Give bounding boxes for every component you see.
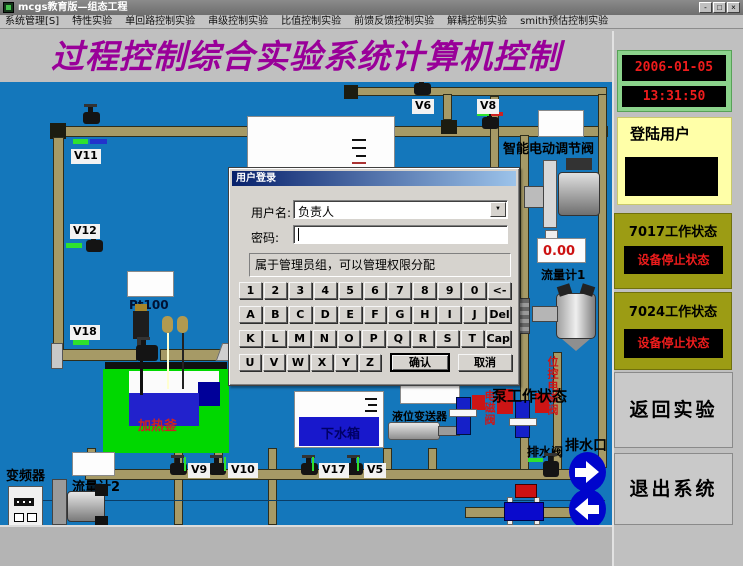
menu-bar: 系统管理[S]特性实验单回路控制实验串级控制实验比值控制实验前馈反馈控制实验解耦… (0, 15, 743, 29)
key-C[interactable]: C (289, 306, 312, 323)
valve-open-bar (528, 458, 543, 462)
status-7024-title: 7024工作状态 (615, 301, 731, 320)
status-7017-title: 7017工作状态 (615, 221, 731, 240)
valve-indicator-box (538, 110, 584, 137)
username-value: 负责人 (298, 203, 334, 220)
chevron-down-icon: ▼ (495, 206, 501, 212)
inverter-key (27, 513, 37, 522)
pt100-probe (133, 311, 149, 339)
key-O[interactable]: O (338, 330, 361, 347)
flow-display-value: 0.00 (543, 244, 575, 259)
pipe (160, 349, 222, 361)
inverter-device (8, 486, 43, 525)
key-1[interactable]: 1 (239, 282, 262, 299)
date-display: 2006-01-05 (622, 55, 726, 81)
cancel-button[interactable]: 取消 (458, 354, 512, 371)
valve-label-v12: V12 (70, 224, 100, 239)
valve-label-v10: V10 (228, 463, 258, 478)
key-J[interactable]: J (463, 306, 486, 323)
pump-body (556, 293, 596, 339)
back-to-experiment-button[interactable]: 返回实验 (614, 372, 733, 448)
key-3[interactable]: 3 (289, 282, 312, 299)
key-2[interactable]: 2 (264, 282, 287, 299)
key-L[interactable]: L (264, 330, 287, 347)
combo-dropdown-button[interactable]: ▼ (490, 202, 506, 217)
valve-v8-icon[interactable] (482, 117, 499, 129)
tank-scale (352, 162, 366, 164)
key-P[interactable]: P (362, 330, 385, 347)
key-T[interactable]: T (461, 330, 484, 347)
key-X[interactable]: X (311, 354, 333, 371)
pipe (53, 137, 64, 355)
valve-label-v17: V17 (319, 463, 349, 478)
valve-label-v11: V11 (71, 149, 101, 164)
valve-label-v6: V6 (412, 99, 434, 114)
close-button[interactable]: × (727, 2, 740, 13)
inverter-key (14, 513, 24, 522)
menu-item[interactable]: 单回路控制实验 (125, 15, 195, 29)
stirrer-rod (182, 333, 184, 389)
key-Del[interactable]: Del (488, 306, 511, 323)
pipe-elbow (344, 85, 358, 99)
status-7024-value: 设备停止状态 (624, 329, 723, 358)
permission-info: 属于管理员组，可以管理权限分配 (249, 253, 511, 277)
frame-line (20, 500, 605, 501)
valve-v17-icon[interactable] (301, 463, 318, 475)
pump-status-label: 泵工作状态 (492, 385, 567, 406)
heater-inner-side (198, 382, 220, 406)
key-Z[interactable]: Z (359, 354, 381, 371)
drain-valve-icon[interactable] (543, 461, 559, 477)
pipe (598, 94, 607, 468)
flowmeter2-box (72, 452, 115, 476)
key-4[interactable]: 4 (314, 282, 337, 299)
tank-scale (352, 147, 366, 149)
floor (0, 525, 612, 566)
key-<-[interactable]: <- (488, 282, 511, 299)
virtual-keyboard: 1234567890<-ABCDEFGHIJDelKLMNOPQRSTCapUV… (239, 282, 511, 378)
valve-v18-icon[interactable] (136, 345, 158, 361)
login-dialog: 用户登录 用户名: 负责人 ▼ 密码: 属于管理员组，可以管理权限分配 1234… (228, 167, 520, 386)
stirrer-rod (167, 333, 169, 389)
valve-label-v5: V5 (364, 463, 386, 478)
key-7[interactable]: 7 (388, 282, 411, 299)
confirm-button[interactable]: 确认 (391, 354, 449, 371)
arrow-head (586, 461, 599, 483)
key-S[interactable]: S (436, 330, 459, 347)
status-7017-value: 设备停止状态 (624, 246, 723, 274)
key-8[interactable]: 8 (413, 282, 436, 299)
username-combobox[interactable]: 负责人 ▼ (293, 200, 508, 219)
smart-valve-motor (558, 172, 600, 216)
solenoid-slider (449, 409, 477, 417)
inverter-leds (17, 501, 19, 503)
valve-label-v9: V9 (188, 463, 210, 478)
login-user-label: 登陆用户 (630, 123, 690, 144)
key-U[interactable]: U (239, 354, 261, 371)
menu-item[interactable]: 系统管理[S] (5, 15, 59, 29)
key-F[interactable]: F (364, 306, 387, 323)
pt100-rod (140, 355, 143, 395)
pt100-indicator-box (127, 271, 174, 297)
valve-tick (184, 457, 186, 471)
key-5[interactable]: 5 (339, 282, 362, 299)
key-A[interactable]: A (239, 306, 262, 323)
time-display: 13:31:50 (622, 86, 726, 107)
key-H[interactable]: H (413, 306, 436, 323)
valve-bar (90, 139, 107, 144)
pump2-port (95, 484, 108, 496)
mcgs-app-window: mcgs教育版—组态工程 - □ × 系统管理[S]特性实验单回路控制实验串级控… (0, 0, 743, 566)
menu-item[interactable]: 特性实验 (72, 15, 112, 29)
menu-item[interactable]: smith预估控制实验 (520, 15, 608, 29)
outlet-arrow-left (569, 489, 606, 525)
status-7017-box: 7017工作状态 设备停止状态 (614, 213, 732, 289)
pump-inlet (532, 306, 558, 322)
key-M[interactable]: M (288, 330, 311, 347)
menu-item[interactable]: 解耦控制实验 (447, 15, 507, 29)
valve-label-v18: V18 (70, 325, 100, 340)
valve-v6-icon[interactable] (414, 83, 431, 95)
minimize-button[interactable]: - (699, 2, 712, 13)
app-icon (3, 2, 14, 13)
key-6[interactable]: 6 (364, 282, 387, 299)
pipe (443, 94, 452, 120)
tank-scale (356, 155, 366, 157)
key-W[interactable]: W (287, 354, 309, 371)
status-7024-box: 7024工作状态 设备停止状态 (614, 292, 732, 370)
key-D[interactable]: D (314, 306, 337, 323)
valve-tick (224, 457, 226, 471)
key-K[interactable]: K (239, 330, 262, 347)
key-9[interactable]: 9 (438, 282, 461, 299)
window-titlebar[interactable]: mcgs教育版—组态工程 - □ × (0, 0, 743, 15)
username-label: 用户名: (251, 204, 291, 221)
key-I[interactable]: I (438, 306, 461, 323)
key-N[interactable]: N (313, 330, 336, 347)
key-R[interactable]: R (412, 330, 435, 347)
heater-label: 加热釜 (138, 415, 177, 434)
smart-valve-label: 智能电动调节阀 (503, 138, 594, 157)
menu-item[interactable]: 前馈反馈控制实验 (354, 15, 434, 29)
text-caret (298, 228, 299, 241)
key-V[interactable]: V (263, 354, 285, 371)
smart-valve-plate (543, 160, 557, 228)
pipe (55, 349, 137, 361)
key-Cap[interactable]: Cap (486, 330, 511, 347)
valve-open-bar (73, 139, 88, 144)
maximize-button[interactable]: □ (713, 2, 726, 13)
smart-valve-coupling (524, 186, 544, 208)
key-E[interactable]: E (339, 306, 362, 323)
valve-tick (312, 457, 314, 471)
tank-scale (368, 404, 377, 406)
pipe-flange (51, 343, 63, 369)
smart-valve-top (566, 158, 592, 170)
solenoid-slider (509, 418, 537, 426)
valve-open-bar (73, 340, 89, 345)
pipe (348, 87, 607, 96)
key-Q[interactable]: Q (387, 330, 410, 347)
key-0[interactable]: 0 (463, 282, 486, 299)
upper-tank (247, 116, 395, 169)
inverter-label: 变频器 (6, 465, 45, 484)
password-label: 密码: (251, 229, 279, 246)
password-input[interactable] (293, 225, 508, 244)
pump2-post (52, 479, 67, 525)
arrow-shaft (587, 505, 599, 514)
valve-tick (357, 457, 359, 471)
valve-v11-icon[interactable] (83, 112, 100, 124)
key-Y[interactable]: Y (335, 354, 357, 371)
level-transmitter-body (388, 422, 440, 440)
pipe-elbow (441, 120, 457, 134)
pipe (268, 448, 277, 525)
window-title: mcgs教育版—组态工程 (18, 0, 127, 15)
flowmeter1-label: 流量计1 (541, 266, 585, 283)
menu-item[interactable]: 串级控制实验 (208, 15, 268, 29)
tank-scale (352, 139, 366, 141)
valve-label-v8: V8 (477, 99, 499, 114)
key-B[interactable]: B (264, 306, 287, 323)
key-G[interactable]: G (388, 306, 411, 323)
pump2-port (95, 516, 108, 525)
flow-display-box: 0.00 (537, 238, 586, 263)
stirrer-motor (162, 316, 173, 333)
outlet-arrow-right (569, 452, 606, 492)
exit-system-button[interactable]: 退出系统 (614, 453, 733, 525)
menu-item[interactable]: 比值控制实验 (281, 15, 341, 29)
pump-cone (562, 339, 590, 351)
em-flowmeter-body (504, 502, 544, 521)
tank-scale (365, 398, 377, 400)
inverter-display (14, 498, 34, 506)
valve-open-bar (66, 243, 82, 248)
dialog-titlebar[interactable]: 用户登录 (232, 171, 516, 186)
valve-v12-icon[interactable] (86, 240, 103, 252)
tank-scale (365, 410, 377, 412)
em-flowmeter-head (515, 484, 537, 498)
page-title: 过程控制综合实验系统计算机控制 (0, 31, 612, 82)
stirrer-motor (177, 316, 188, 333)
lower-tank-label: 下水箱 (321, 423, 360, 442)
login-user-display (625, 157, 718, 196)
